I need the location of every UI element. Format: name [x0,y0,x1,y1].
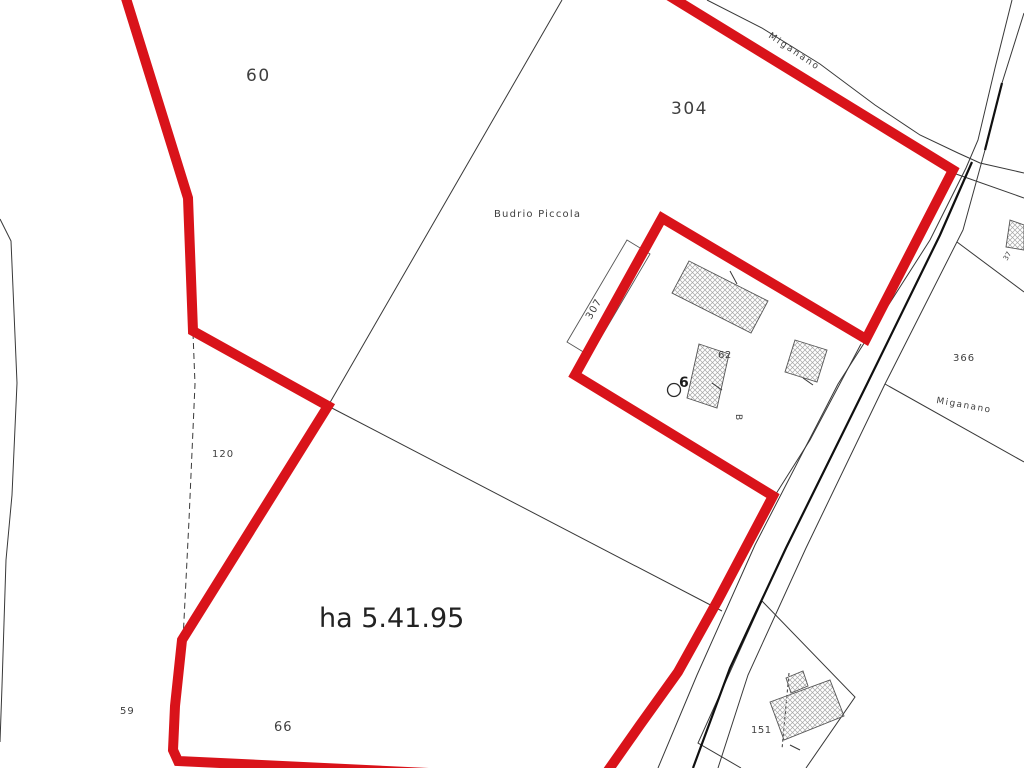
cadastral-map-page: 60304Budrio Piccola307626B366MigananoMig… [0,0,1024,768]
building-hatched-edge-sliver [1006,220,1024,250]
street-label-miganano-right: Miganano [935,396,992,416]
road-centerline-dark-lower [693,162,972,768]
road-edge-ns-east [718,13,1024,768]
parcel-label-366: 366 [953,353,975,364]
tick-mark-building-151 [790,745,800,750]
red-boundary-west [124,0,575,768]
parcel-label-60: 60 [246,66,271,86]
house-number-label-6: 6 [679,375,689,391]
road-centerline-dark-upper [985,83,1002,150]
building-hatched-151-body [770,680,844,740]
parcel-line-366-north [957,242,1024,292]
annotation-label-b: B [733,414,743,420]
red-boundary-east [575,0,953,768]
parcel-label-62: 62 [718,350,732,361]
parcel-line-366-south [885,384,1024,462]
parcel-line-long-diagonal [328,0,562,406]
parcel-line-lower-diagonal [328,406,722,611]
cadastral-map-canvas: 60304Budrio Piccola307626B366MigananoMig… [0,0,1024,768]
road-edge-north [707,0,1024,173]
parcel-label-66: 66 [274,720,293,735]
parcel-label-37: 37 [1002,250,1013,262]
red-boundary-layer [124,0,953,768]
building-hatched-small [785,340,827,382]
parcel-label-120: 120 [212,449,234,460]
parcel-line-mid-vertical [183,333,195,640]
area-measure-label: ha 5.41.95 [319,603,464,634]
locality-label-budrio-piccola: Budrio Piccola [494,209,581,220]
parcel-label-151: 151 [751,725,772,736]
parcel-label-304: 304 [671,99,708,119]
labels-layer: 60304Budrio Piccola307626B366MigananoMig… [120,31,1013,736]
parcel-line-west-curvy [0,219,17,742]
parcel-label-59: 59 [120,706,135,717]
